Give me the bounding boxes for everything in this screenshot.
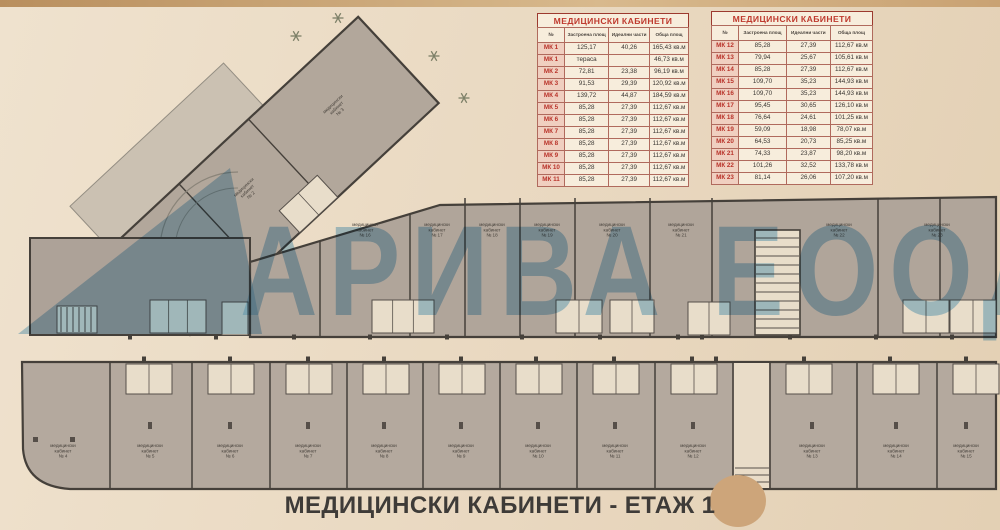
area-value-cell: 40,26: [609, 43, 650, 55]
area-value-cell: 76,64: [739, 113, 787, 125]
area-value-cell: 27,39: [609, 139, 650, 151]
table-row: МК 2064,5320,7385,25 кв.м: [712, 137, 873, 149]
area-value-cell: 72,81: [565, 67, 609, 79]
area-value-cell: 85,28: [565, 163, 609, 175]
area-value-cell: 25,67: [786, 53, 830, 65]
table-row: МК 4139,7244,87184,59 кв.м: [538, 91, 689, 103]
area-value-cell: 24,61: [786, 113, 830, 125]
room-id-cell: МК 10: [538, 163, 565, 175]
area-value-cell: 120,92 кв.м: [649, 79, 688, 91]
room-id-cell: МК 7: [538, 127, 565, 139]
area-value-cell: 105,61 кв.м: [830, 53, 872, 65]
floor-title: МЕДИЦИНСКИ КАБИНЕТИ - ЕТАЖ 1: [0, 492, 1000, 520]
table-row: МК 391,5329,39120,92 кв.м: [538, 79, 689, 91]
area-value-cell: 27,39: [609, 115, 650, 127]
table-row: МК 1185,2827,39112,67 кв.м: [538, 175, 689, 187]
area-value-cell: 18,98: [786, 125, 830, 137]
area-value-cell: 27,39: [609, 151, 650, 163]
area-value-cell: 23,38: [609, 67, 650, 79]
table-row: МК 685,2827,39112,67 кв.м: [538, 115, 689, 127]
area-value-cell: 112,67 кв.м: [649, 151, 688, 163]
room-id-cell: МК 13: [712, 53, 739, 65]
area-value-cell: 44,87: [609, 91, 650, 103]
entrance-passage: [734, 363, 769, 488]
column-header: Идеални части: [609, 28, 650, 43]
column-header: Идеални части: [786, 26, 830, 41]
room-id-cell: МК 3: [538, 79, 565, 91]
table-row: МК 885,2827,39112,67 кв.м: [538, 139, 689, 151]
table-row: МК 2381,1426,06107,20 кв.м: [712, 173, 873, 185]
area-value-cell: 79,94: [739, 53, 787, 65]
room-id-cell: МК 5: [538, 103, 565, 115]
area-value-cell: 109,70: [739, 89, 787, 101]
area-value-cell: 95,45: [739, 101, 787, 113]
area-value-cell: 96,19 кв.м: [649, 67, 688, 79]
table-row: МК 1876,6424,61101,25 кв.м: [712, 113, 873, 125]
room-id-cell: МК 19: [712, 125, 739, 137]
room-id-cell: МК 8: [538, 139, 565, 151]
room-id-cell: МК 23: [712, 173, 739, 185]
area-value-cell: 85,28: [739, 41, 787, 53]
room-id-cell: МК 1: [538, 55, 565, 67]
column-header: №: [712, 26, 739, 41]
table-row: МК 985,2827,39112,67 кв.м: [538, 151, 689, 163]
area-value-cell: 46,73 кв.м: [649, 55, 688, 67]
areas-table-1-grid: №Застроена площИдеални частиОбща площМК …: [537, 27, 689, 187]
table-row: МК 2174,3323,8798,20 кв.м: [712, 149, 873, 161]
area-value-cell: 144,93 кв.м: [830, 77, 872, 89]
room-id-cell: МК 17: [712, 101, 739, 113]
table-row: МК 785,2827,39112,67 кв.м: [538, 127, 689, 139]
area-value-cell: 165,43 кв.м: [649, 43, 688, 55]
column-header: №: [538, 28, 565, 43]
table-row: МК 1085,2827,39112,67 кв.м: [538, 163, 689, 175]
area-value-cell: 112,67 кв.м: [649, 127, 688, 139]
floorplan-photo: медицинскикабинет№ 1медицинскикабинет№ 2…: [0, 0, 1000, 530]
area-value-cell: 85,28: [565, 139, 609, 151]
area-value-cell: 59,09: [739, 125, 787, 137]
room-id-cell: МК 11: [538, 175, 565, 187]
area-value-cell: 32,52: [786, 161, 830, 173]
area-value-cell: 35,23: [786, 89, 830, 101]
area-value-cell: 112,67 кв.м: [830, 41, 872, 53]
area-value-cell: 27,39: [609, 127, 650, 139]
area-value-cell: 30,65: [786, 101, 830, 113]
area-value-cell: 26,06: [786, 173, 830, 185]
area-value-cell: 23,87: [786, 149, 830, 161]
room-id-cell: МК 15: [712, 77, 739, 89]
area-value-cell: 112,67 кв.м: [649, 175, 688, 187]
room-id-cell: МК 16: [712, 89, 739, 101]
area-value-cell: 78,07 кв.м: [830, 125, 872, 137]
column-header: Обща площ: [830, 26, 872, 41]
door-marks: [128, 335, 968, 362]
table-row: МК 15109,7035,23144,93 кв.м: [712, 77, 873, 89]
area-value-cell: 85,28: [565, 175, 609, 187]
area-value-cell: 85,28: [565, 151, 609, 163]
area-value-cell: 101,25 кв.м: [830, 113, 872, 125]
table-row: МК 1795,4530,65126,10 кв.м: [712, 101, 873, 113]
area-value-cell: 64,53: [739, 137, 787, 149]
area-value-cell: 85,28: [739, 65, 787, 77]
room-id-cell: МК 14: [712, 65, 739, 77]
table-row: МК 1379,9425,67105,61 кв.м: [712, 53, 873, 65]
room-id-cell: МК 21: [712, 149, 739, 161]
area-value-cell: 85,28: [565, 127, 609, 139]
room-id-cell: МК 2: [538, 67, 565, 79]
area-value-cell: 112,67 кв.м: [649, 139, 688, 151]
room-id-cell: МК 22: [712, 161, 739, 173]
area-value-cell: 27,39: [609, 103, 650, 115]
area-value-cell: 112,67 кв.м: [649, 163, 688, 175]
room-id-cell: МК 9: [538, 151, 565, 163]
table-row: МК 22101,2632,52133,78 кв.м: [712, 161, 873, 173]
area-value-cell: 85,28: [565, 115, 609, 127]
area-value-cell: 139,72: [565, 91, 609, 103]
area-value-cell: 27,39: [786, 41, 830, 53]
table-row: МК 585,2827,39112,67 кв.м: [538, 103, 689, 115]
area-value-cell: 126,10 кв.м: [830, 101, 872, 113]
table-title: МЕДИЦИНСКИ КАБИНЕТИ: [711, 11, 873, 25]
table-row: МК 1тераса46,73 кв.м: [538, 55, 689, 67]
table-row: МК 1285,2827,39112,67 кв.м: [712, 41, 873, 53]
table-row: МК 1959,0918,9878,07 кв.м: [712, 125, 873, 137]
area-value-cell: 74,33: [739, 149, 787, 161]
area-value-cell: 101,26: [739, 161, 787, 173]
room-id-cell: МК 20: [712, 137, 739, 149]
area-value-cell: 85,25 кв.м: [830, 137, 872, 149]
room-id-cell: МК 4: [538, 91, 565, 103]
column-header: Обща площ: [649, 28, 688, 43]
area-value-cell: 112,67 кв.м: [649, 115, 688, 127]
area-value-cell: 81,14: [739, 173, 787, 185]
area-value-cell: 27,39: [786, 65, 830, 77]
table-row: МК 1485,2827,39112,67 кв.м: [712, 65, 873, 77]
area-value-cell: 85,28: [565, 103, 609, 115]
table-title: МЕДИЦИНСКИ КАБИНЕТИ: [537, 13, 689, 27]
room-id-cell: МК 6: [538, 115, 565, 127]
area-value-cell: [609, 55, 650, 67]
area-value-cell: 35,23: [786, 77, 830, 89]
room-id-cell: МК 12: [712, 41, 739, 53]
area-value-cell: 125,17: [565, 43, 609, 55]
area-value-cell: 27,39: [609, 175, 650, 187]
table-row: МК 16109,7035,23144,93 кв.м: [712, 89, 873, 101]
area-value-cell: 29,39: [609, 79, 650, 91]
table-row: МК 272,8123,3896,19 кв.м: [538, 67, 689, 79]
areas-table-2-grid: №Застроена площИдеални частиОбща площМК …: [711, 25, 873, 185]
area-value-cell: 112,67 кв.м: [830, 65, 872, 77]
area-value-cell: 91,53: [565, 79, 609, 91]
area-value-cell: 27,39: [609, 163, 650, 175]
column-header: Застроена площ: [739, 26, 787, 41]
area-value-cell: 107,20 кв.м: [830, 173, 872, 185]
areas-table-1: МЕДИЦИНСКИ КАБИНЕТИ №Застроена площИдеал…: [537, 13, 689, 187]
area-value-cell: 112,67 кв.м: [649, 103, 688, 115]
room-id-cell: МК 18: [712, 113, 739, 125]
area-value-cell: 133,78 кв.м: [830, 161, 872, 173]
area-value-cell: 184,59 кв.м: [649, 91, 688, 103]
area-value-cell: 109,70: [739, 77, 787, 89]
room-id-cell: МК 1: [538, 43, 565, 55]
column-header: Застроена площ: [565, 28, 609, 43]
areas-table-2: МЕДИЦИНСКИ КАБИНЕТИ №Застроена площИдеал…: [711, 11, 873, 185]
area-value-cell: 98,20 кв.м: [830, 149, 872, 161]
area-value-cell: 144,93 кв.м: [830, 89, 872, 101]
area-value-cell: тераса: [565, 55, 609, 67]
table-row: МК 1125,1740,26165,43 кв.м: [538, 43, 689, 55]
area-value-cell: 20,73: [786, 137, 830, 149]
